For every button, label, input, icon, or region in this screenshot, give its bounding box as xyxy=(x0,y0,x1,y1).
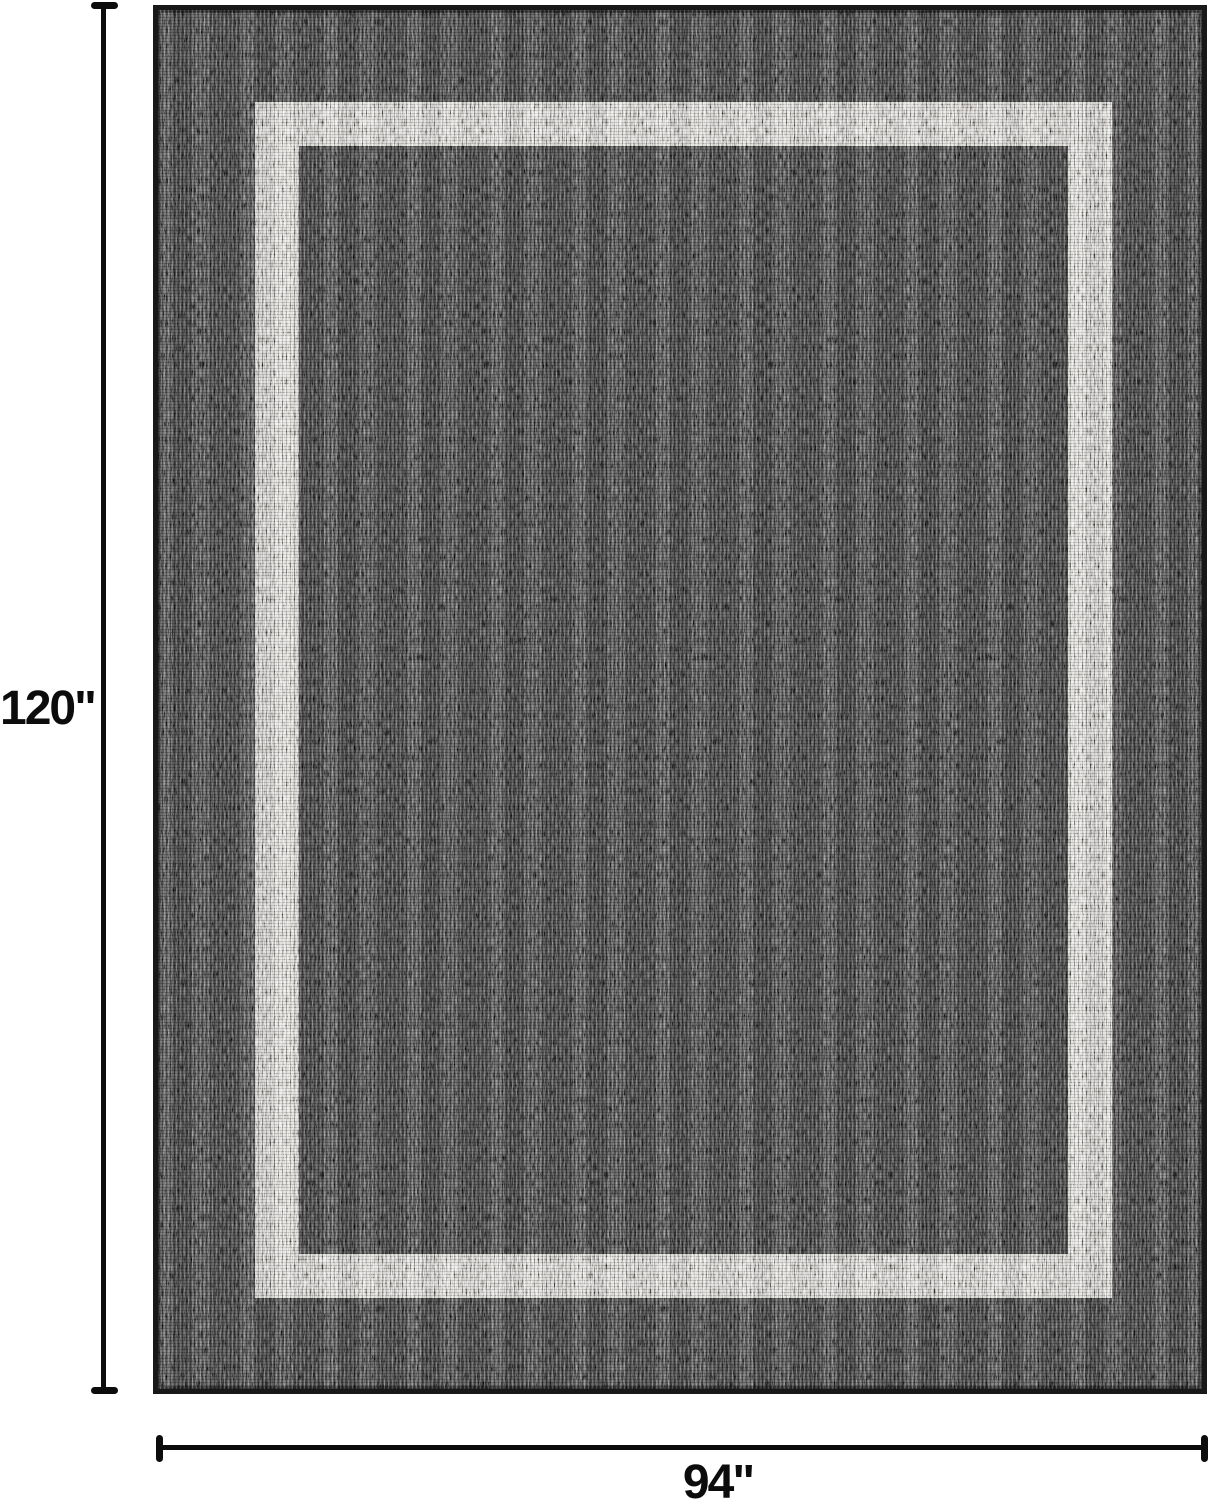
height-dimension-line xyxy=(101,6,106,1390)
width-dimension-left-cap-icon xyxy=(156,1435,163,1462)
rug-photo xyxy=(153,5,1207,1394)
product-dimension-image: 120" 94" xyxy=(0,0,1215,1500)
height-dimension-bottom-cap-icon xyxy=(91,1387,118,1394)
width-dimension-right-cap-icon xyxy=(1201,1435,1208,1462)
width-dimension-label: 94" xyxy=(618,1459,818,1500)
width-dimension-line xyxy=(160,1445,1206,1450)
height-dimension-top-cap-icon xyxy=(91,2,118,9)
rug-border-band xyxy=(255,102,1112,1298)
height-dimension-label: 120" xyxy=(0,685,92,733)
